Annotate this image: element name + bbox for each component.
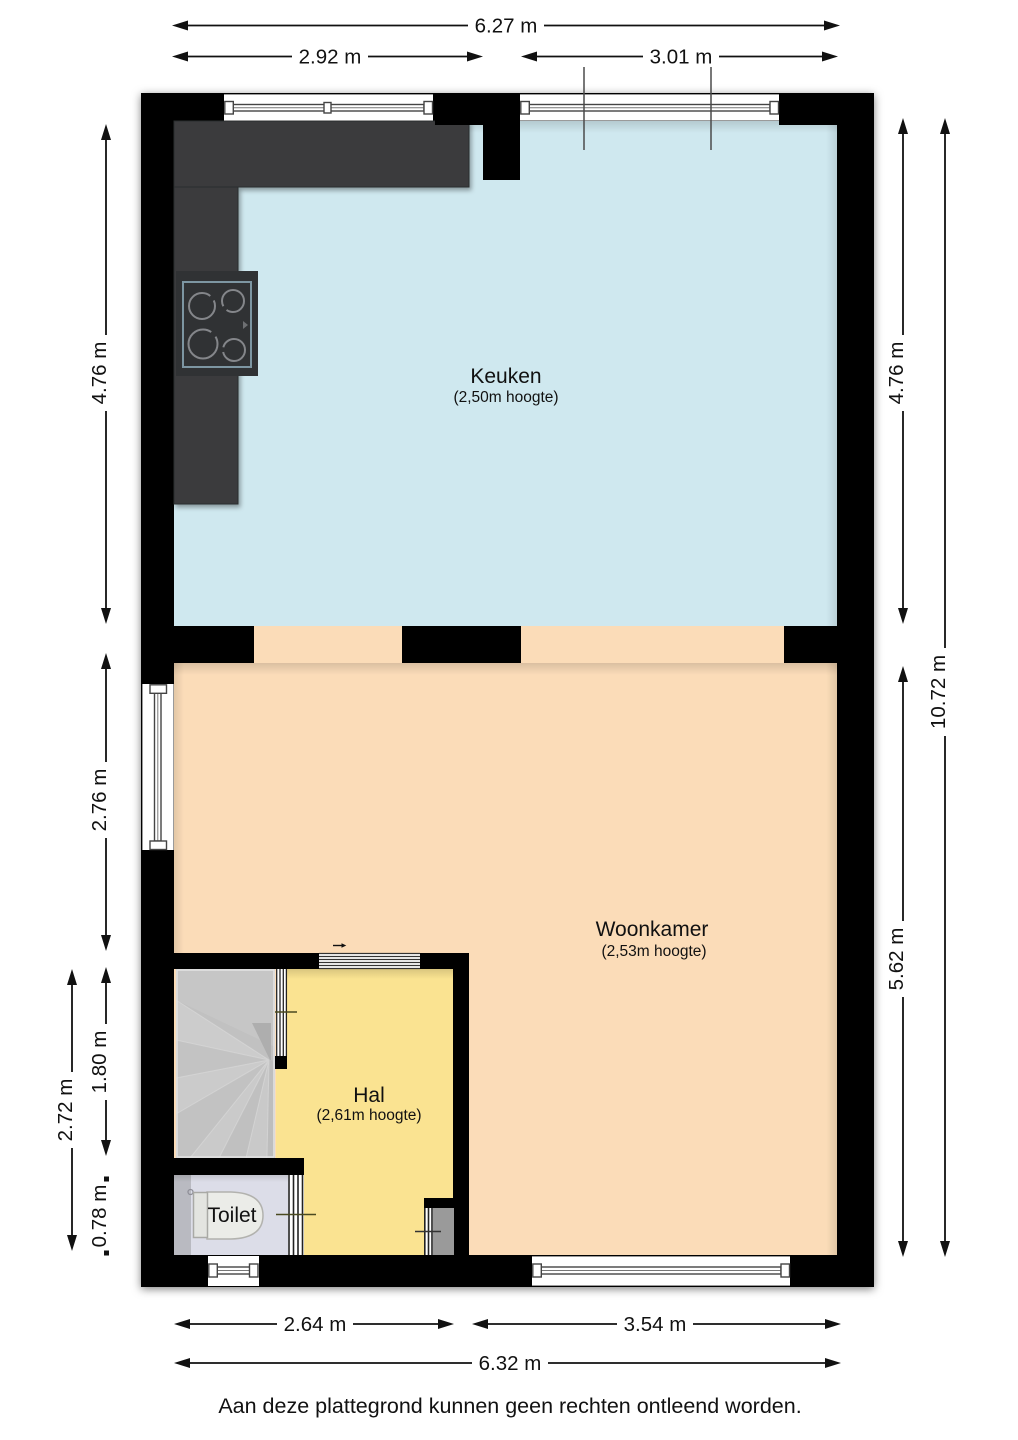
- svg-text:(2,53m hoogte): (2,53m hoogte): [601, 943, 706, 960]
- svg-text:2.64 m: 2.64 m: [284, 1313, 347, 1336]
- svg-text:4.76 m: 4.76 m: [88, 342, 111, 405]
- svg-text:3.54 m: 3.54 m: [624, 1313, 687, 1336]
- svg-text:2.72 m: 2.72 m: [54, 1079, 77, 1142]
- svg-text:3.01 m: 3.01 m: [650, 46, 713, 69]
- svg-text:6.27 m: 6.27 m: [475, 15, 538, 38]
- svg-text:6.32 m: 6.32 m: [479, 1352, 542, 1375]
- svg-text:Aan deze plattegrond kunnen ge: Aan deze plattegrond kunnen geen rechten…: [218, 1394, 801, 1418]
- svg-text:0.78 m: 0.78 m: [88, 1185, 111, 1248]
- svg-text:Woonkamer: Woonkamer: [596, 918, 709, 941]
- svg-text:10.72 m: 10.72 m: [927, 655, 950, 729]
- svg-text:(2,50m hoogte): (2,50m hoogte): [453, 389, 558, 406]
- svg-text:Toilet: Toilet: [207, 1204, 256, 1227]
- svg-text:2.76 m: 2.76 m: [88, 769, 111, 832]
- svg-text:2.92 m: 2.92 m: [299, 46, 362, 69]
- svg-text:1.80 m: 1.80 m: [88, 1031, 111, 1094]
- svg-text:Hal: Hal: [353, 1084, 385, 1107]
- svg-text:5.62 m: 5.62 m: [885, 928, 908, 991]
- svg-text:(2,61m hoogte): (2,61m hoogte): [316, 1107, 421, 1124]
- svg-text:4.76 m: 4.76 m: [885, 342, 908, 405]
- svg-text:Keuken: Keuken: [470, 365, 541, 388]
